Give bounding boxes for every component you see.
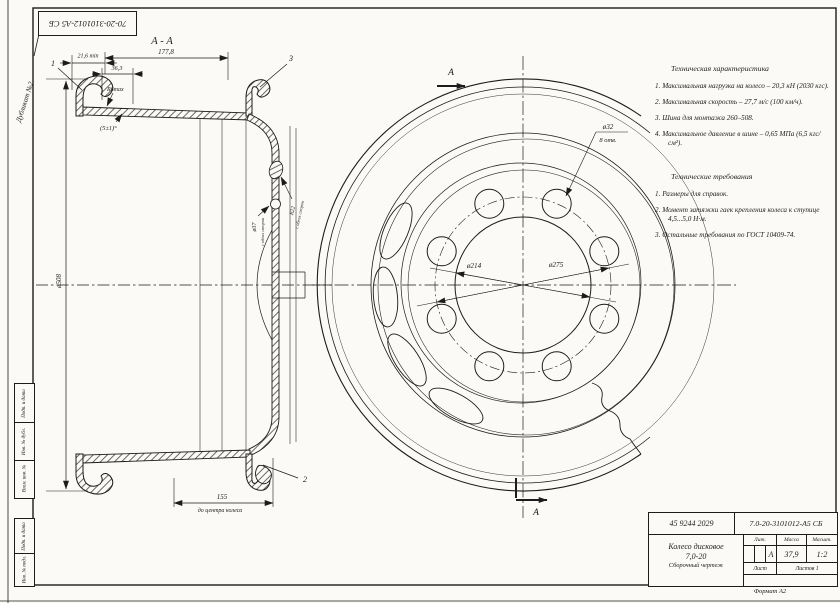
designation-box: 70-20-3101012-А5 СБ (38, 11, 137, 36)
callout-3-leader (260, 64, 287, 87)
tech-characteristics-item: 3. Шина для монтажа 260–508. (655, 114, 830, 123)
section-title: А - А (150, 36, 173, 47)
title-block-designation: 7.0-20-3101012-А5 СБ (735, 513, 837, 535)
strip-cell: Подп. и дата (15, 519, 34, 553)
tech-requirements-item: 3. Остальные требования по ГОСТ 10409-74… (655, 231, 830, 240)
vent-windows (371, 199, 488, 431)
lock-ring-section (256, 465, 272, 483)
title-block-empty-right (744, 575, 837, 586)
lit-cell-1 (744, 546, 755, 563)
scale-value: 1:2 (807, 546, 837, 563)
title-block: 45 9244 2029 7.0-20-3101012-А5 СБ Колесо… (648, 512, 838, 587)
doc-type: Сборочный чертеж (669, 562, 723, 569)
lit-cell-2 (755, 546, 766, 563)
disc-edge-circle-2 (378, 139, 674, 435)
strip-label: Взам. инв. № (22, 465, 27, 493)
dim-hole37-label: ø37 (252, 222, 258, 233)
frame-strip-upper: Подп. и дата Инв. № дубл. Взам. инв. № (14, 383, 35, 499)
dim-bolt-circle-label: ø275 (548, 261, 564, 269)
disc-hole-section (271, 199, 281, 209)
callout-1: 1 (51, 59, 55, 68)
leader-hole37 (258, 206, 269, 216)
tech-requirements: Технические требования 1. Размеры для сп… (655, 172, 830, 247)
dim-rim-width-label: 177,8 (158, 48, 174, 56)
dim-bolt-hole-note: 8 отв. (599, 137, 617, 144)
dim-rim-width (105, 52, 228, 80)
break-line (592, 383, 641, 454)
strip-cell: Инв. № дубл. (15, 422, 34, 460)
lit-value: А (766, 546, 777, 563)
tech-characteristics-item: 2. Максимальная скорость – 27,7 м/с (100… (655, 98, 830, 107)
section-plane-arrows (437, 86, 547, 500)
frame-strip-lower: Подп. и дата Инв. № подл. (14, 518, 35, 587)
tech-requirements-item: 2. Момент затяжки гаек крепления колеса … (655, 206, 830, 225)
dim-bead-seat-label: 36,3 (111, 65, 123, 72)
strip-label: Подп. и дата (22, 522, 27, 551)
rim-flange-top-right (246, 80, 270, 116)
col-lit: Лит. (744, 535, 777, 546)
section-label-bottom: А (532, 508, 539, 518)
part-name-line2: 7,0-20 (686, 552, 707, 561)
rim-band-top (83, 107, 250, 120)
title-block-empty-left (649, 575, 744, 586)
title-block-doc-number: 45 9244 2029 (649, 513, 735, 535)
dim-outer-dia-label: ø508 (55, 274, 63, 290)
tech-characteristics-title: Техническая характеристика (671, 64, 830, 74)
dim-hole37-note: с обеих сторон (260, 217, 265, 246)
callout-3: 3 (288, 54, 293, 63)
dim-offset-label: 155 (217, 493, 228, 501)
section-view (36, 52, 332, 507)
tech-requirements-title: Технические требования (671, 172, 830, 182)
strip-label: Инв. № дубл. (22, 428, 27, 455)
mass-value: 37,9 (777, 546, 807, 563)
strip-label: Подп. и дата (22, 389, 27, 418)
dim-offset-note: до центра колеса (198, 507, 242, 514)
dim-bolt-hole-label: ø32 (602, 123, 614, 131)
drawing-sheet: А - А 177,8 21,6 min 36,3 R6max (5±1)° ø… (0, 0, 840, 603)
hub-dome-circle-2 (408, 170, 640, 402)
col-mass: Масса (777, 535, 807, 546)
strip-cell: Инв. № подл. (15, 553, 34, 584)
strip-label: Инв. № подл. (22, 555, 27, 583)
rim-band-bottom (83, 450, 250, 463)
dim-angle-label: (5±1)° (100, 125, 117, 132)
sheets-label: Листов 1 (777, 563, 837, 575)
dim-flange-min-label: 21,6 min (78, 54, 99, 60)
tech-requirements-item: 1. Размеры для справок. (655, 190, 830, 199)
sheet-label: Лист (744, 563, 777, 575)
dim-hub-dia-label: ø214 (466, 262, 482, 270)
rim-disc-weld-section (267, 159, 285, 180)
tech-characteristics-item: 4. Максимальное давление в шине – 0,65 М… (655, 130, 830, 149)
title-block-name: Колесо дисковое 7,0-20 Сборочный чертеж (649, 535, 744, 575)
col-scale: Масшт. (807, 535, 837, 546)
dim-r6max-label: R6max (106, 87, 124, 93)
hub-dome-circle (401, 163, 641, 403)
dim-bolt-hole-dia (566, 132, 628, 196)
tech-characteristics-item: 1. Максимальная нагрузка на колесо – 20,… (655, 82, 830, 91)
strip-cell: Взам. инв. № (15, 460, 34, 496)
strip-cell: Подп. и дата (15, 384, 34, 422)
part-name-line1: Колесо дисковое (668, 542, 723, 551)
section-label-top: А (447, 68, 454, 78)
format-note: Формат А2 (720, 588, 820, 595)
leader-r22 (281, 177, 292, 199)
designation-text: 70-20-3101012-А5 СБ (49, 19, 127, 29)
tech-characteristics: Техническая характеристика 1. Максимальн… (655, 64, 830, 155)
callout-2: 2 (303, 475, 307, 484)
